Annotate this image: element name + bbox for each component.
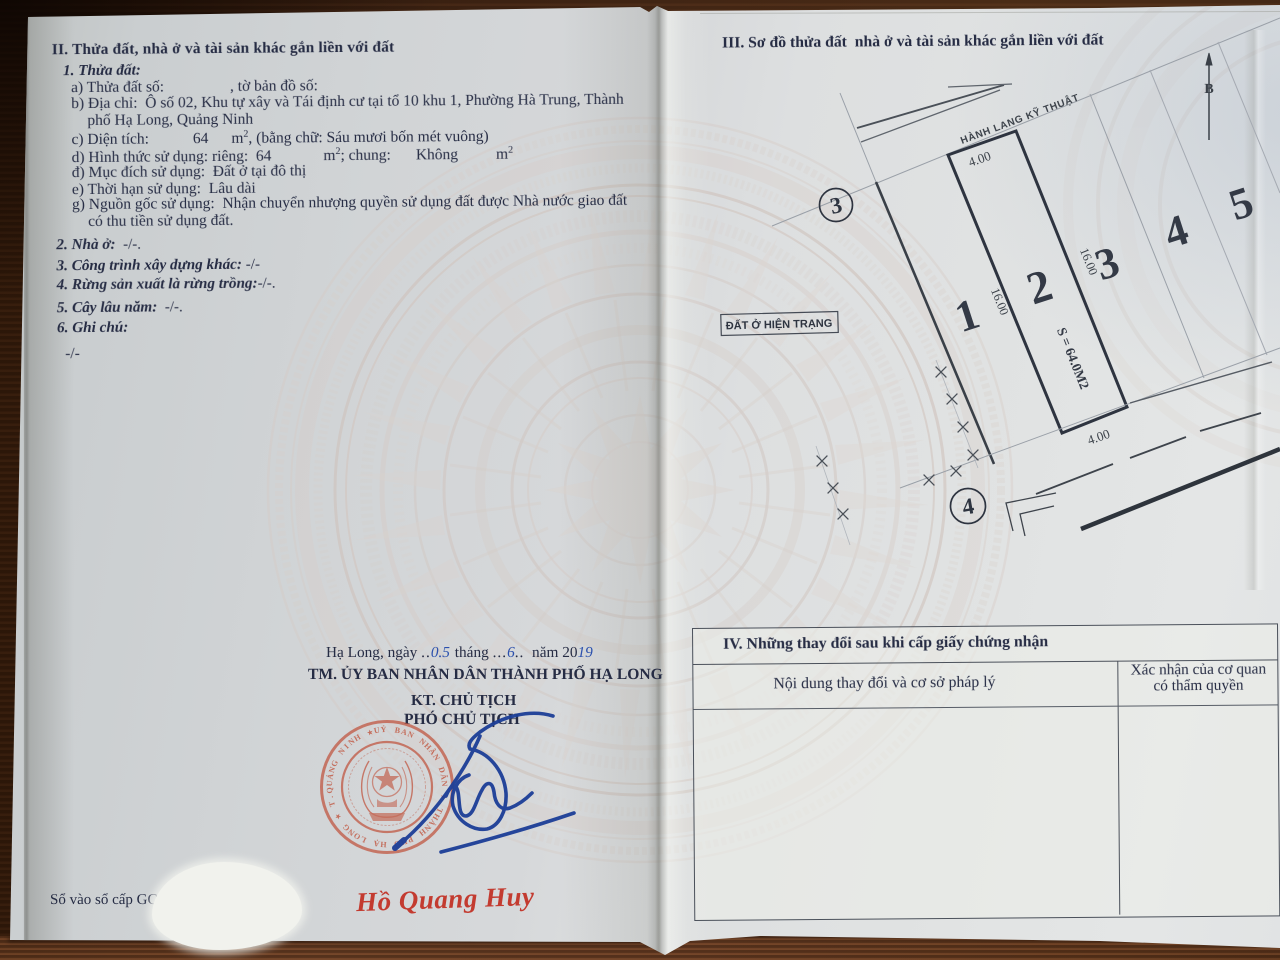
svg-text:ĐẤT Ở HIỆN TRẠNG: ĐẤT Ở HIỆN TRẠNG xyxy=(726,317,833,333)
svg-text:★: ★ xyxy=(333,812,343,821)
svg-text:T: T xyxy=(327,800,337,808)
svg-text:4.00: 4.00 xyxy=(1085,426,1111,448)
svg-text:4: 4 xyxy=(960,493,976,520)
svg-text:5: 5 xyxy=(1223,177,1259,230)
svg-text:4: 4 xyxy=(1158,205,1194,258)
svg-text:1: 1 xyxy=(949,289,985,342)
svg-text:B: B xyxy=(1204,82,1213,97)
svg-text:16.00: 16.00 xyxy=(988,286,1012,317)
svg-text:Q: Q xyxy=(325,787,334,794)
svg-text:.: . xyxy=(326,795,335,799)
svg-text:3: 3 xyxy=(828,192,844,219)
svg-text:4.00: 4.00 xyxy=(966,148,992,170)
svg-text:S = 64.0M2: S = 64.0M2 xyxy=(1054,325,1092,391)
svg-text:2: 2 xyxy=(1020,259,1058,315)
svg-text:U: U xyxy=(325,780,334,787)
